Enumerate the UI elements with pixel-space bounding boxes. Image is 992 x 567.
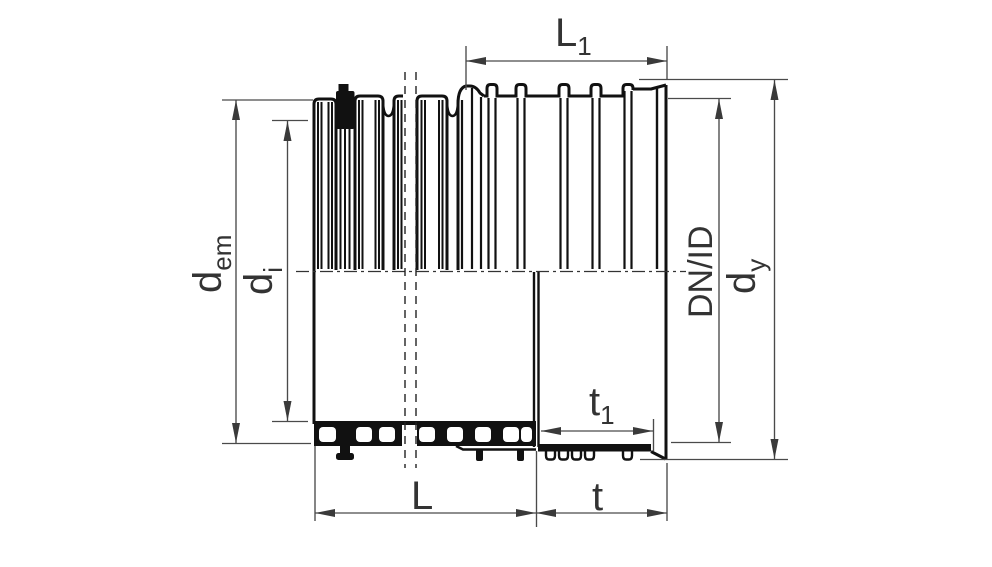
label-t: t: [592, 475, 603, 519]
pipe-drawing-svg: L1 L t t1 dem di DN/ID dy: [0, 0, 992, 567]
label-l1: L1: [555, 11, 592, 61]
break-lines: [405, 72, 416, 468]
pipe-wall-section: [314, 270, 539, 447]
label-dn-id: DN/ID: [682, 225, 720, 318]
label-d-i: di: [237, 267, 288, 295]
label-d-em: dem: [186, 235, 237, 293]
corrugated-pipe-elevation: [314, 96, 458, 270]
label-d-y: dy: [720, 259, 771, 294]
label-l: L: [411, 474, 433, 518]
technical-drawing-canvas: L1 L t t1 dem di DN/ID dy: [0, 0, 992, 567]
label-t1: t1: [589, 380, 615, 430]
socket-wall-section: [456, 444, 666, 461]
